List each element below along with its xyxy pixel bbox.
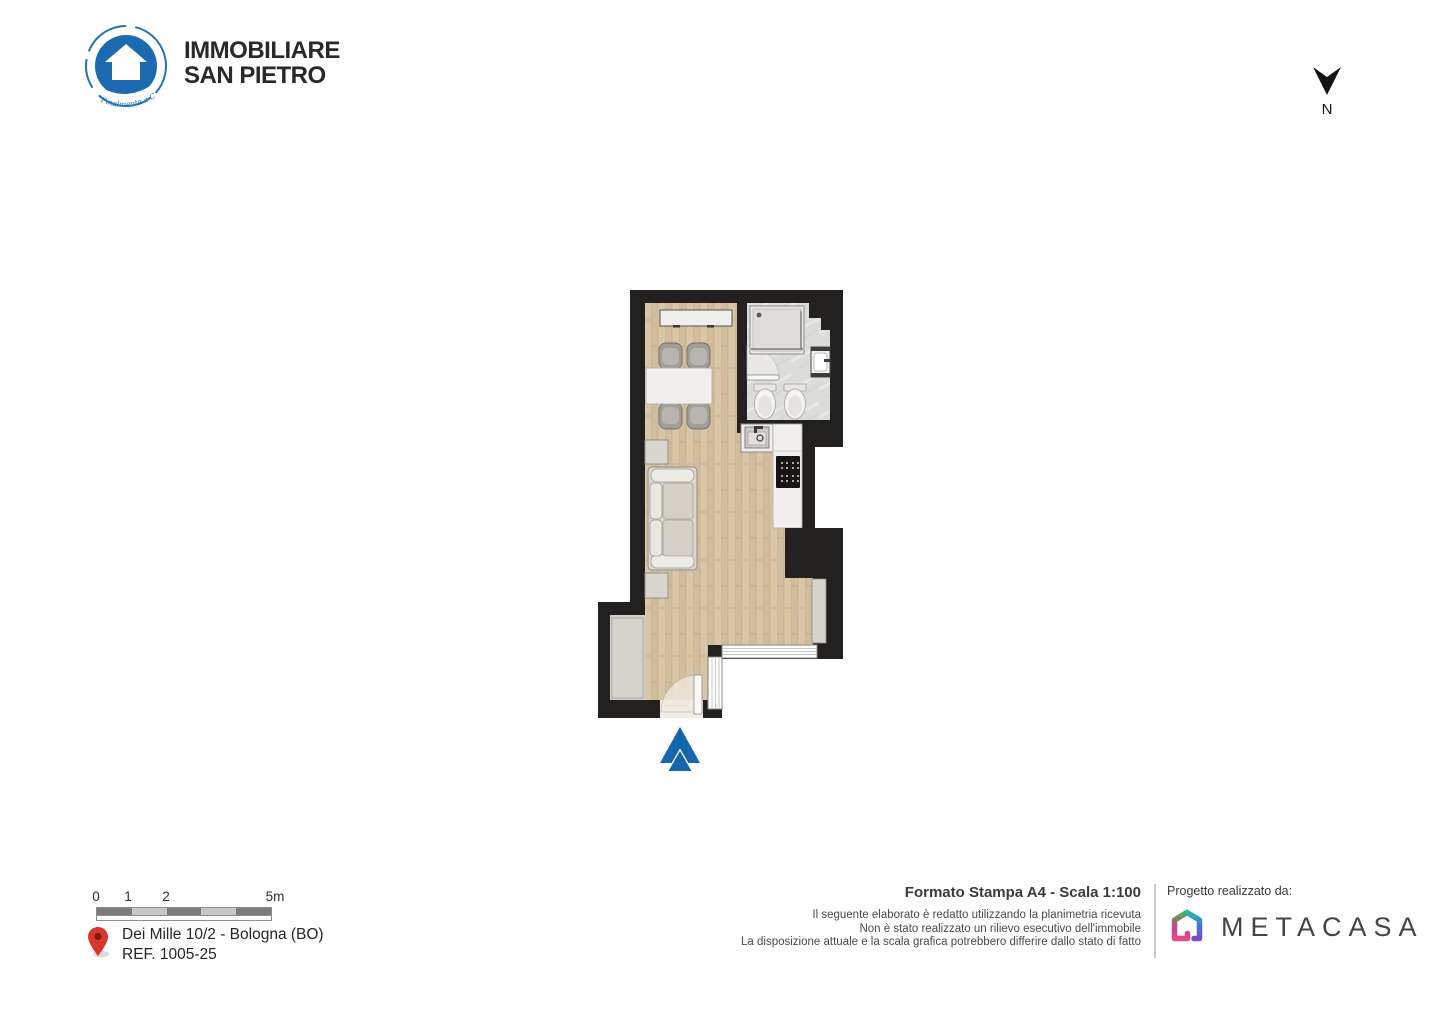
agency-name: IMMOBILIARE SAN PIETRO [184, 38, 340, 88]
window-bottom [722, 645, 817, 658]
print-info: Formato Stampa A4 - Scala 1:100 Il segue… [581, 884, 1141, 950]
agency-name-line1: IMMOBILIARE [184, 38, 340, 63]
side-table [645, 573, 668, 598]
print-format-title: Formato Stampa A4 - Scala 1:100 [581, 884, 1141, 901]
disclaimer-line: La disposizione attuale e la scala grafi… [581, 936, 1141, 950]
wardrobe [612, 618, 643, 698]
shower [750, 306, 804, 354]
bidet [754, 384, 776, 419]
wall-step [821, 318, 830, 330]
wall-bump [785, 528, 817, 578]
bathroom-sink [811, 347, 830, 377]
footer-divider [1154, 884, 1156, 958]
side-panel [812, 579, 826, 643]
scale-tick: 1 [124, 889, 132, 904]
scale-tick: 0 [92, 889, 100, 904]
scale-tick: 5m [266, 889, 285, 904]
sideboard [660, 310, 732, 328]
sofa [648, 467, 697, 570]
scale-bar-graphic [96, 907, 272, 921]
disclaimer-line: Non è stato realizzato un rilievo esecut… [581, 923, 1141, 937]
credits-label: Progetto realizzato da: [1167, 884, 1424, 898]
dining-table [646, 368, 712, 404]
scale-tick: 2 [162, 889, 170, 904]
property-location: Dei Mille 10/2 - Bologna (BO) REF. 1005-… [88, 925, 324, 965]
compass-label: N [1310, 101, 1344, 118]
window-side [708, 657, 722, 709]
toilet [784, 384, 806, 419]
scale-bar: 0 1 2 5m [96, 889, 284, 919]
floorplan-page: Finalmente a Casa IMMOBILIARE SAN PIETRO… [0, 0, 1440, 1018]
north-arrow-icon [1310, 64, 1344, 96]
agency-name-line2: SAN PIETRO [184, 63, 340, 88]
credits-company: METACASA [1221, 912, 1424, 943]
disclaimer-line: Il seguente elaborato è redatto utilizza… [581, 909, 1141, 923]
property-reference: REF. 1005-25 [122, 945, 324, 965]
property-address: Dei Mille 10/2 - Bologna (BO) [122, 925, 324, 945]
wall-step [809, 303, 830, 318]
bathroom-partition-wall [737, 380, 747, 420]
house-in-circle-icon: Finalmente a Casa [80, 20, 172, 116]
side-table [645, 440, 668, 464]
floorplan-drawing [595, 285, 845, 775]
metacasa-house-icon [1167, 907, 1207, 947]
cooktop [776, 456, 800, 488]
kitchen-sink [741, 424, 773, 452]
agency-logo: Finalmente a Casa IMMOBILIARE SAN PIETRO [80, 20, 340, 116]
compass: N [1310, 64, 1344, 118]
bathroom-partition-wall [737, 303, 747, 345]
credits: Progetto realizzato da: [1167, 884, 1424, 947]
entrance-arrow-icon [660, 727, 700, 771]
location-pin-icon [88, 927, 110, 959]
